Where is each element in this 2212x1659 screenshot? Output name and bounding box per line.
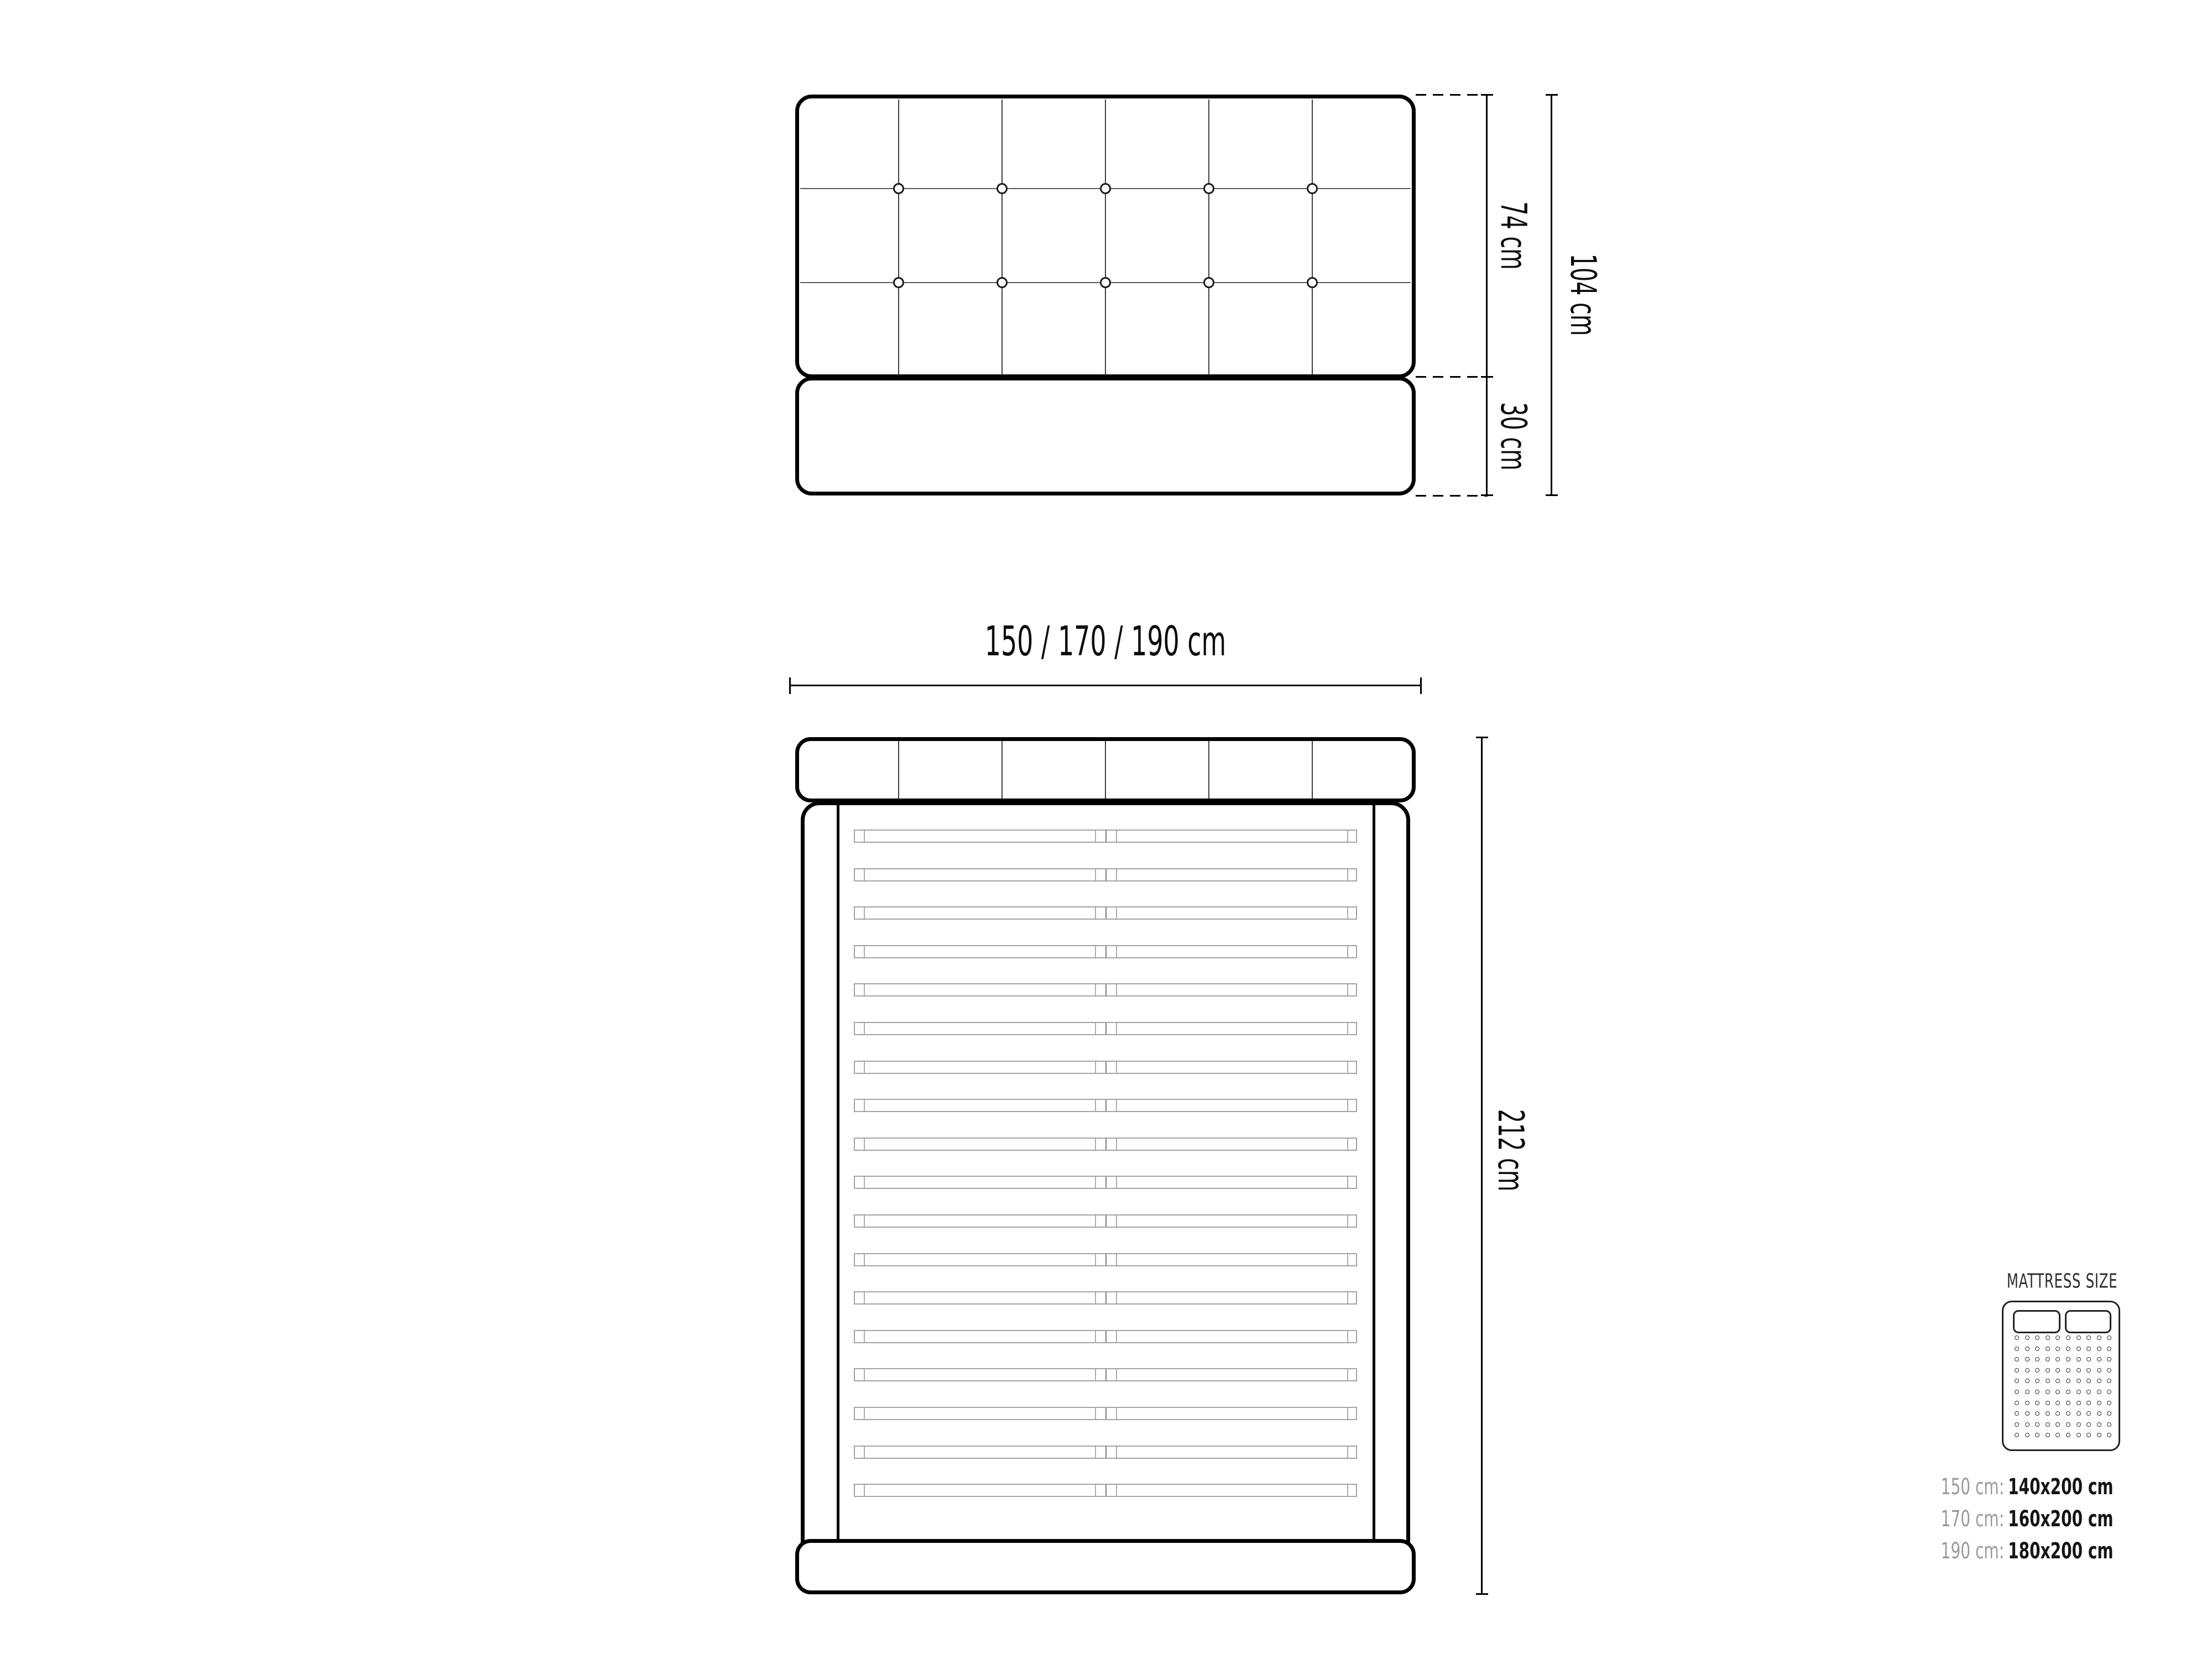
headboard-seam-vertical (1001, 100, 1003, 375)
slat-center-joint (1105, 1408, 1107, 1419)
slat-endcap-line (1116, 946, 1117, 957)
mattress-dot (2025, 1401, 2030, 1405)
mattress-dot (2025, 1335, 2030, 1340)
top-bar-section-divider (898, 741, 899, 799)
slat (854, 945, 1357, 958)
slat-endcap-line (1347, 1139, 1348, 1150)
slat-endcap-line (1116, 831, 1117, 842)
mattress-dot (2056, 1390, 2060, 1394)
mattress-dot (2107, 1390, 2111, 1394)
slat-endcap-line (1347, 1331, 1348, 1342)
mattress-dot (2046, 1368, 2050, 1373)
top-bar-section-divider (1312, 741, 1313, 799)
front-base-outline (795, 377, 1416, 495)
slat-endcap-line (1347, 1062, 1348, 1073)
mattress-dot (2086, 1433, 2091, 1437)
slat-endcap-line (864, 1023, 865, 1034)
mattress-dot (2097, 1390, 2101, 1394)
mattress-dot (2086, 1347, 2091, 1351)
mattress-dot (2025, 1411, 2030, 1416)
slat-endcap-line (1116, 1177, 1117, 1188)
mattress-size-row: 170 cm:160x200 cm (1941, 1506, 2114, 1532)
mattress-dot (2077, 1411, 2081, 1416)
mattress-dot (2046, 1401, 2050, 1405)
slat-center-joint (1105, 1485, 1107, 1496)
slat (854, 1368, 1357, 1381)
slat-endcap-line (864, 1292, 865, 1303)
mattress-dot (2097, 1379, 2101, 1383)
slat (854, 830, 1357, 843)
mattress-dot (2015, 1379, 2019, 1383)
mattress-dot (2107, 1433, 2111, 1437)
slat-center-joint (1105, 831, 1107, 842)
slat-endcap-line (1347, 1254, 1348, 1265)
headboard-seam-vertical (1105, 100, 1106, 375)
mattress-dot (2086, 1390, 2091, 1394)
mattress-dot (2066, 1347, 2070, 1351)
mattress-dot (2015, 1401, 2019, 1405)
slat (854, 1022, 1357, 1035)
mattress-dot (2107, 1401, 2111, 1405)
mattress-dot (2066, 1390, 2070, 1394)
mattress-dot (2025, 1422, 2030, 1427)
frame-size-label: 170 cm: (1941, 1506, 2004, 1532)
bed-width-label: 150 / 170 / 190 cm (985, 618, 1226, 665)
mattress-dot (2086, 1411, 2091, 1416)
mattress-dot (2086, 1335, 2091, 1340)
mattress-dot (2097, 1357, 2101, 1361)
slat-endcap-line (864, 1139, 865, 1150)
mattress-dot (2097, 1368, 2101, 1373)
slat-endcap-line (1347, 984, 1348, 995)
mattress-dot (2025, 1390, 2030, 1394)
headboard-seam-vertical (1208, 100, 1209, 375)
slat-endcap-line (864, 831, 865, 842)
mattress-dot (2107, 1347, 2111, 1351)
mattress-dot (2035, 1433, 2039, 1437)
mattress-dot (2077, 1390, 2081, 1394)
right-side-rail (1373, 804, 1375, 1539)
slat-endcap-line (1116, 1331, 1117, 1342)
mattress-dot (2015, 1357, 2019, 1361)
slat-endcap-line (1347, 1100, 1348, 1111)
slat-endcap-line (1095, 1177, 1096, 1188)
mattress-dot (2107, 1335, 2111, 1340)
mattress-dot (2097, 1433, 2101, 1437)
mattress-dot (2046, 1335, 2050, 1340)
slat-endcap-line (1116, 1254, 1117, 1265)
top-footer-bar (795, 1539, 1416, 1594)
mattress-dot (2056, 1357, 2060, 1361)
mattress-dot (2056, 1401, 2060, 1405)
slat-endcap-line (1095, 984, 1096, 995)
slat-endcap-line (1116, 907, 1117, 919)
mattress-dot (2066, 1335, 2070, 1340)
slat-endcap-line (1116, 1485, 1117, 1496)
tick (789, 677, 791, 694)
tick (1420, 677, 1422, 694)
slat-endcap-line (1116, 1369, 1117, 1380)
mattress-dot (2086, 1357, 2091, 1361)
mattress-dot (2107, 1422, 2111, 1427)
slat-endcap-line (1116, 1408, 1117, 1419)
mattress-size-row: 190 cm:180x200 cm (1941, 1538, 2114, 1564)
mattress-dot (2077, 1347, 2081, 1351)
mattress-dot (2077, 1433, 2081, 1437)
slat-center-joint (1105, 946, 1107, 957)
tufting-button (997, 183, 1008, 194)
mattress-dot (2056, 1433, 2060, 1437)
slat-center-joint (1105, 984, 1107, 995)
tick (1481, 494, 1493, 496)
mattress-dot (2015, 1335, 2019, 1340)
slat-endcap-line (1095, 869, 1096, 880)
slat-endcap-line (1095, 1485, 1096, 1496)
slat-endcap-line (1347, 1485, 1348, 1496)
slat-center-joint (1105, 1023, 1107, 1034)
tick (1476, 1593, 1488, 1595)
slat-endcap-line (1116, 1447, 1117, 1458)
slat-center-joint (1105, 907, 1107, 919)
slat-center-joint (1105, 1139, 1107, 1150)
mattress-dot (2077, 1401, 2081, 1405)
slat-endcap-line (1095, 1023, 1096, 1034)
slat-endcap-line (864, 1408, 865, 1419)
tufting-button (1203, 183, 1214, 194)
mattress-dot (2066, 1357, 2070, 1361)
slat-endcap-line (864, 984, 865, 995)
frame-size-label: 150 cm: (1941, 1474, 2004, 1500)
mattress-size-value: 140x200 cm (2008, 1474, 2114, 1500)
mattress-dot (2015, 1347, 2019, 1351)
slat-endcap-line (864, 1447, 865, 1458)
dimension-line-212 (1481, 737, 1483, 1594)
slat (854, 1176, 1357, 1189)
slat-endcap-line (864, 1485, 865, 1496)
mattress-dot (2097, 1422, 2101, 1427)
mattress-dot (2077, 1422, 2081, 1427)
slat-center-joint (1105, 1369, 1107, 1380)
mattress-dot (2035, 1390, 2039, 1394)
mattress-size-value: 160x200 cm (2008, 1506, 2114, 1532)
mattress-dot (2056, 1347, 2060, 1351)
mattress-size-value: 180x200 cm (2008, 1538, 2114, 1564)
slat-center-joint (1105, 869, 1107, 880)
slat-endcap-line (1347, 1177, 1348, 1188)
top-bar-section-divider (1208, 741, 1209, 799)
slat (854, 1214, 1357, 1228)
tufting-button (1100, 277, 1111, 288)
mattress-dot (2086, 1379, 2091, 1383)
slat-endcap-line (1116, 1292, 1117, 1303)
dimension-line-74-30 (1486, 95, 1488, 495)
slat (854, 868, 1357, 881)
mattress-dot (2015, 1433, 2019, 1437)
mattress-dot (2035, 1411, 2039, 1416)
mattress-dot (2066, 1411, 2070, 1416)
mattress-icon (2002, 1301, 2120, 1451)
pillow-icon-right (2065, 1310, 2111, 1333)
tick (1481, 376, 1493, 378)
slat-endcap-line (864, 907, 865, 919)
dimension-line-width (790, 685, 1421, 686)
legend-title: MATTRESS SIZE (2007, 1270, 2118, 1293)
tick (1476, 737, 1488, 738)
mattress-dot (2015, 1422, 2019, 1427)
mattress-dot (2015, 1368, 2019, 1373)
mattress-dot (2097, 1335, 2101, 1340)
slat-endcap-line (864, 1331, 865, 1342)
mattress-dot (2046, 1422, 2050, 1427)
slat-center-joint (1105, 1292, 1107, 1303)
slat (854, 983, 1357, 997)
mattress-dot (2046, 1433, 2050, 1437)
pillow-icon-left (2013, 1310, 2060, 1333)
mattress-dot (2066, 1422, 2070, 1427)
slat-center-joint (1105, 1447, 1107, 1458)
mattress-dot (2056, 1335, 2060, 1340)
mattress-dot (2107, 1379, 2111, 1383)
bed-dimension-diagram: 74 cm 30 cm 104 cm 150 / 170 / 190 cm 21… (0, 0, 2212, 1659)
slat-endcap-line (1095, 1292, 1096, 1303)
mattress-dot (2086, 1401, 2091, 1405)
bed-length-label: 212 cm (1490, 1109, 1531, 1192)
mattress-dot (2086, 1368, 2091, 1373)
left-side-rail (837, 804, 839, 1539)
slat-center-joint (1105, 1331, 1107, 1342)
slat-endcap-line (864, 1369, 865, 1380)
slat-endcap-line (864, 869, 865, 880)
slat-endcap-line (1095, 1139, 1096, 1150)
mattress-dot (2035, 1379, 2039, 1383)
mattress-dot (2107, 1411, 2111, 1416)
slat-endcap-line (864, 1100, 865, 1111)
mattress-dot (2035, 1422, 2039, 1427)
slat-endcap-line (1347, 1447, 1348, 1458)
mattress-dot (2077, 1335, 2081, 1340)
mattress-dot (2015, 1411, 2019, 1416)
slat-endcap-line (1347, 1023, 1348, 1034)
slat-endcap-line (1347, 946, 1348, 957)
slat-endcap-line (1347, 869, 1348, 880)
slat-endcap-line (1095, 1100, 1096, 1111)
mattress-dot (2097, 1347, 2101, 1351)
tufting-button (893, 277, 904, 288)
slat-center-joint (1105, 1100, 1107, 1111)
tick (1546, 494, 1558, 496)
slat (854, 1484, 1357, 1497)
mattress-dot (2035, 1368, 2039, 1373)
base-height-label: 30 cm (1493, 402, 1533, 471)
slat-endcap-line (1347, 1369, 1348, 1380)
slat-endcap-line (1116, 1100, 1117, 1111)
mattress-dot (2077, 1379, 2081, 1383)
slat (854, 1138, 1357, 1151)
extension-line-top (1416, 94, 1488, 96)
slat-center-joint (1105, 1215, 1107, 1227)
slat-endcap-line (1347, 831, 1348, 842)
mattress-dot (2056, 1379, 2060, 1383)
mattress-dot (2025, 1379, 2030, 1383)
slat-endcap-line (1347, 1408, 1348, 1419)
headboard-height-label: 74 cm (1493, 201, 1533, 270)
tufting-button (1100, 183, 1111, 194)
mattress-dot (2056, 1422, 2060, 1427)
top-bar-section-divider (1001, 741, 1003, 799)
mattress-dot (2035, 1335, 2039, 1340)
tick (1481, 94, 1493, 96)
total-height-label: 104 cm (1562, 254, 1603, 336)
mattress-dot (2097, 1401, 2101, 1405)
mattress-dot (2097, 1411, 2101, 1416)
tufting-button (893, 183, 904, 194)
mattress-dot (2035, 1347, 2039, 1351)
slat-endcap-line (864, 1254, 865, 1265)
slat-endcap-line (1095, 831, 1096, 842)
frame-size-label: 190 cm: (1941, 1538, 2004, 1564)
mattress-dot (2025, 1368, 2030, 1373)
mattress-dot (2056, 1368, 2060, 1373)
tufting-button (1307, 183, 1318, 194)
slat-endcap-line (1095, 1215, 1096, 1227)
top-bar-section-divider (1105, 741, 1106, 799)
mattress-dot (2107, 1357, 2111, 1361)
slat-center-joint (1105, 1062, 1107, 1073)
headboard-seam-vertical (898, 100, 899, 375)
slat-endcap-line (1095, 1331, 1096, 1342)
mattress-dot (2046, 1390, 2050, 1394)
mattress-dot (2046, 1357, 2050, 1361)
mattress-dot (2077, 1368, 2081, 1373)
slat (854, 1330, 1357, 1343)
slat (854, 1291, 1357, 1305)
mattress-dot (2046, 1379, 2050, 1383)
mattress-dot (2066, 1379, 2070, 1383)
slat-endcap-line (1095, 1254, 1096, 1265)
slat-endcap-line (1116, 1139, 1117, 1150)
mattress-dot (2015, 1390, 2019, 1394)
slat-center-joint (1105, 1254, 1107, 1265)
slat-endcap-line (864, 1177, 865, 1188)
slat (854, 1061, 1357, 1074)
extension-line-middle (1416, 376, 1488, 378)
slat-endcap-line (864, 1215, 865, 1227)
slat (854, 1253, 1357, 1266)
slat-endcap-line (1095, 907, 1096, 919)
slat-endcap-line (1095, 1062, 1096, 1073)
slat-endcap-line (1116, 1023, 1117, 1034)
mattress-dot (2086, 1422, 2091, 1427)
mattress-dot (2077, 1357, 2081, 1361)
tick (1546, 94, 1558, 96)
tufting-button (997, 277, 1008, 288)
slat-endcap-line (1347, 1215, 1348, 1227)
headboard-seam-vertical (1312, 100, 1313, 375)
mattress-dot (2035, 1357, 2039, 1361)
slat-endcap-line (1095, 946, 1096, 957)
slat-endcap-line (1347, 1292, 1348, 1303)
slat-endcap-line (864, 1062, 865, 1073)
mattress-dot (2066, 1401, 2070, 1405)
mattress-dot (2066, 1368, 2070, 1373)
slat-endcap-line (1116, 1062, 1117, 1073)
slat-endcap-line (1116, 869, 1117, 880)
slat-endcap-line (1116, 984, 1117, 995)
mattress-dot (2046, 1411, 2050, 1416)
slat (854, 906, 1357, 920)
top-frame-outline (801, 801, 1410, 1594)
slat (854, 1446, 1357, 1459)
slat-endcap-line (1095, 1408, 1096, 1419)
slat-endcap-line (864, 946, 865, 957)
slat-endcap-line (1116, 1215, 1117, 1227)
slat-endcap-line (1347, 907, 1348, 919)
mattress-dot (2025, 1357, 2030, 1361)
slat (854, 1099, 1357, 1112)
mattress-dot (2046, 1347, 2050, 1351)
mattress-dot (2025, 1347, 2030, 1351)
mattress-dot (2066, 1433, 2070, 1437)
extension-line-bottom (1416, 495, 1488, 497)
mattress-dot (2025, 1433, 2030, 1437)
mattress-dot (2056, 1411, 2060, 1416)
slat-center-joint (1105, 1177, 1107, 1188)
mattress-dot (2107, 1368, 2111, 1373)
tufting-button (1307, 277, 1318, 288)
mattress-size-row: 150 cm:140x200 cm (1941, 1474, 2114, 1500)
mattress-dot (2035, 1401, 2039, 1405)
slat (854, 1407, 1357, 1420)
slat-endcap-line (1095, 1369, 1096, 1380)
slat-endcap-line (1095, 1447, 1096, 1458)
dimension-line-104 (1551, 95, 1552, 495)
tufting-button (1203, 277, 1214, 288)
